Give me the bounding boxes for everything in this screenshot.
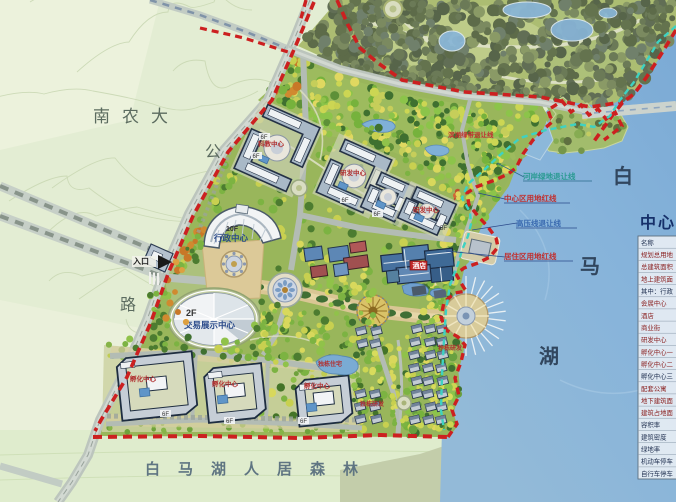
svg-text:建筑占地面: 建筑占地面: [641, 408, 674, 417]
svg-text:白马湖人居森林: 白马湖人居森林: [145, 460, 376, 478]
svg-text:2F: 2F: [186, 308, 197, 318]
svg-text:其中：行政: 其中：行政: [641, 287, 674, 296]
svg-text:6F: 6F: [342, 198, 349, 204]
svg-text:地下建筑面: 地下建筑面: [641, 396, 674, 405]
svg-text:6F: 6F: [253, 154, 260, 160]
svg-text:名称: 名称: [641, 238, 654, 247]
svg-text:10F: 10F: [226, 226, 239, 233]
svg-text:孵化中心: 孵化中心: [212, 379, 239, 388]
svg-text:容积率: 容积率: [641, 420, 661, 429]
svg-text:孵化中心: 孵化中心: [130, 374, 157, 383]
svg-text:居住区用地红线: 居住区用地红线: [504, 251, 557, 261]
svg-text:酒店: 酒店: [413, 261, 427, 270]
svg-text:孵化中心一: 孵化中心一: [641, 347, 674, 356]
svg-text:白: 白: [613, 164, 633, 188]
svg-text:公: 公: [205, 144, 221, 161]
svg-text:地上建筑面: 地上建筑面: [641, 274, 674, 283]
svg-text:高压线退让线: 高压线退让线: [516, 218, 561, 228]
svg-text:绿地率: 绿地率: [641, 445, 661, 454]
svg-text:机动车停车: 机动车停车: [641, 457, 674, 466]
svg-text:中心区: 中心区: [640, 213, 676, 232]
svg-text:5F: 5F: [440, 226, 447, 232]
svg-text:马: 马: [580, 256, 600, 278]
svg-text:6F: 6F: [374, 212, 381, 218]
svg-text:6F: 6F: [226, 419, 233, 425]
svg-text:研发中心: 研发中心: [340, 168, 367, 177]
svg-text:总建筑面积: 总建筑面积: [641, 262, 674, 271]
svg-text:研发中心: 研发中心: [641, 335, 667, 344]
svg-text:南农大: 南农大: [93, 107, 180, 126]
svg-text:配套公寓: 配套公寓: [641, 384, 667, 393]
svg-text:独栋研发: 独栋研发: [359, 400, 384, 408]
svg-text:6F: 6F: [300, 419, 307, 425]
svg-text:规划总用地: 规划总用地: [641, 250, 674, 259]
svg-text:酒店: 酒店: [641, 311, 654, 320]
svg-text:湖: 湖: [539, 345, 559, 368]
svg-text:交易展示中心: 交易展示中心: [184, 320, 236, 330]
svg-text:自行车停车: 自行车停车: [641, 469, 674, 478]
svg-text:中心区用地红线: 中心区用地红线: [504, 193, 557, 203]
svg-text:建筑密度: 建筑密度: [641, 432, 667, 441]
svg-text:孵化中心三: 孵化中心三: [641, 372, 673, 381]
svg-text:商业街: 商业街: [641, 323, 661, 332]
svg-text:科教中心: 科教中心: [258, 139, 285, 148]
svg-text:行政中心: 行政中心: [213, 233, 249, 243]
svg-text:河岸绿地退让线: 河岸绿地退让线: [523, 171, 576, 181]
svg-text:滨湖绿带退让线: 滨湖绿带退让线: [448, 130, 494, 139]
svg-text:独栋研发: 独栋研发: [437, 344, 462, 352]
svg-text:孵化中心二: 孵化中心二: [641, 359, 674, 368]
svg-text:入口: 入口: [132, 257, 149, 266]
svg-text:路: 路: [120, 296, 136, 314]
svg-text:研发中心: 研发中心: [413, 205, 440, 214]
svg-text:孵化中心: 孵化中心: [304, 381, 331, 390]
svg-text:独栋住宅: 独栋住宅: [317, 360, 342, 368]
svg-text:6F: 6F: [162, 412, 169, 418]
svg-text:会展中心: 会展中心: [641, 299, 667, 308]
